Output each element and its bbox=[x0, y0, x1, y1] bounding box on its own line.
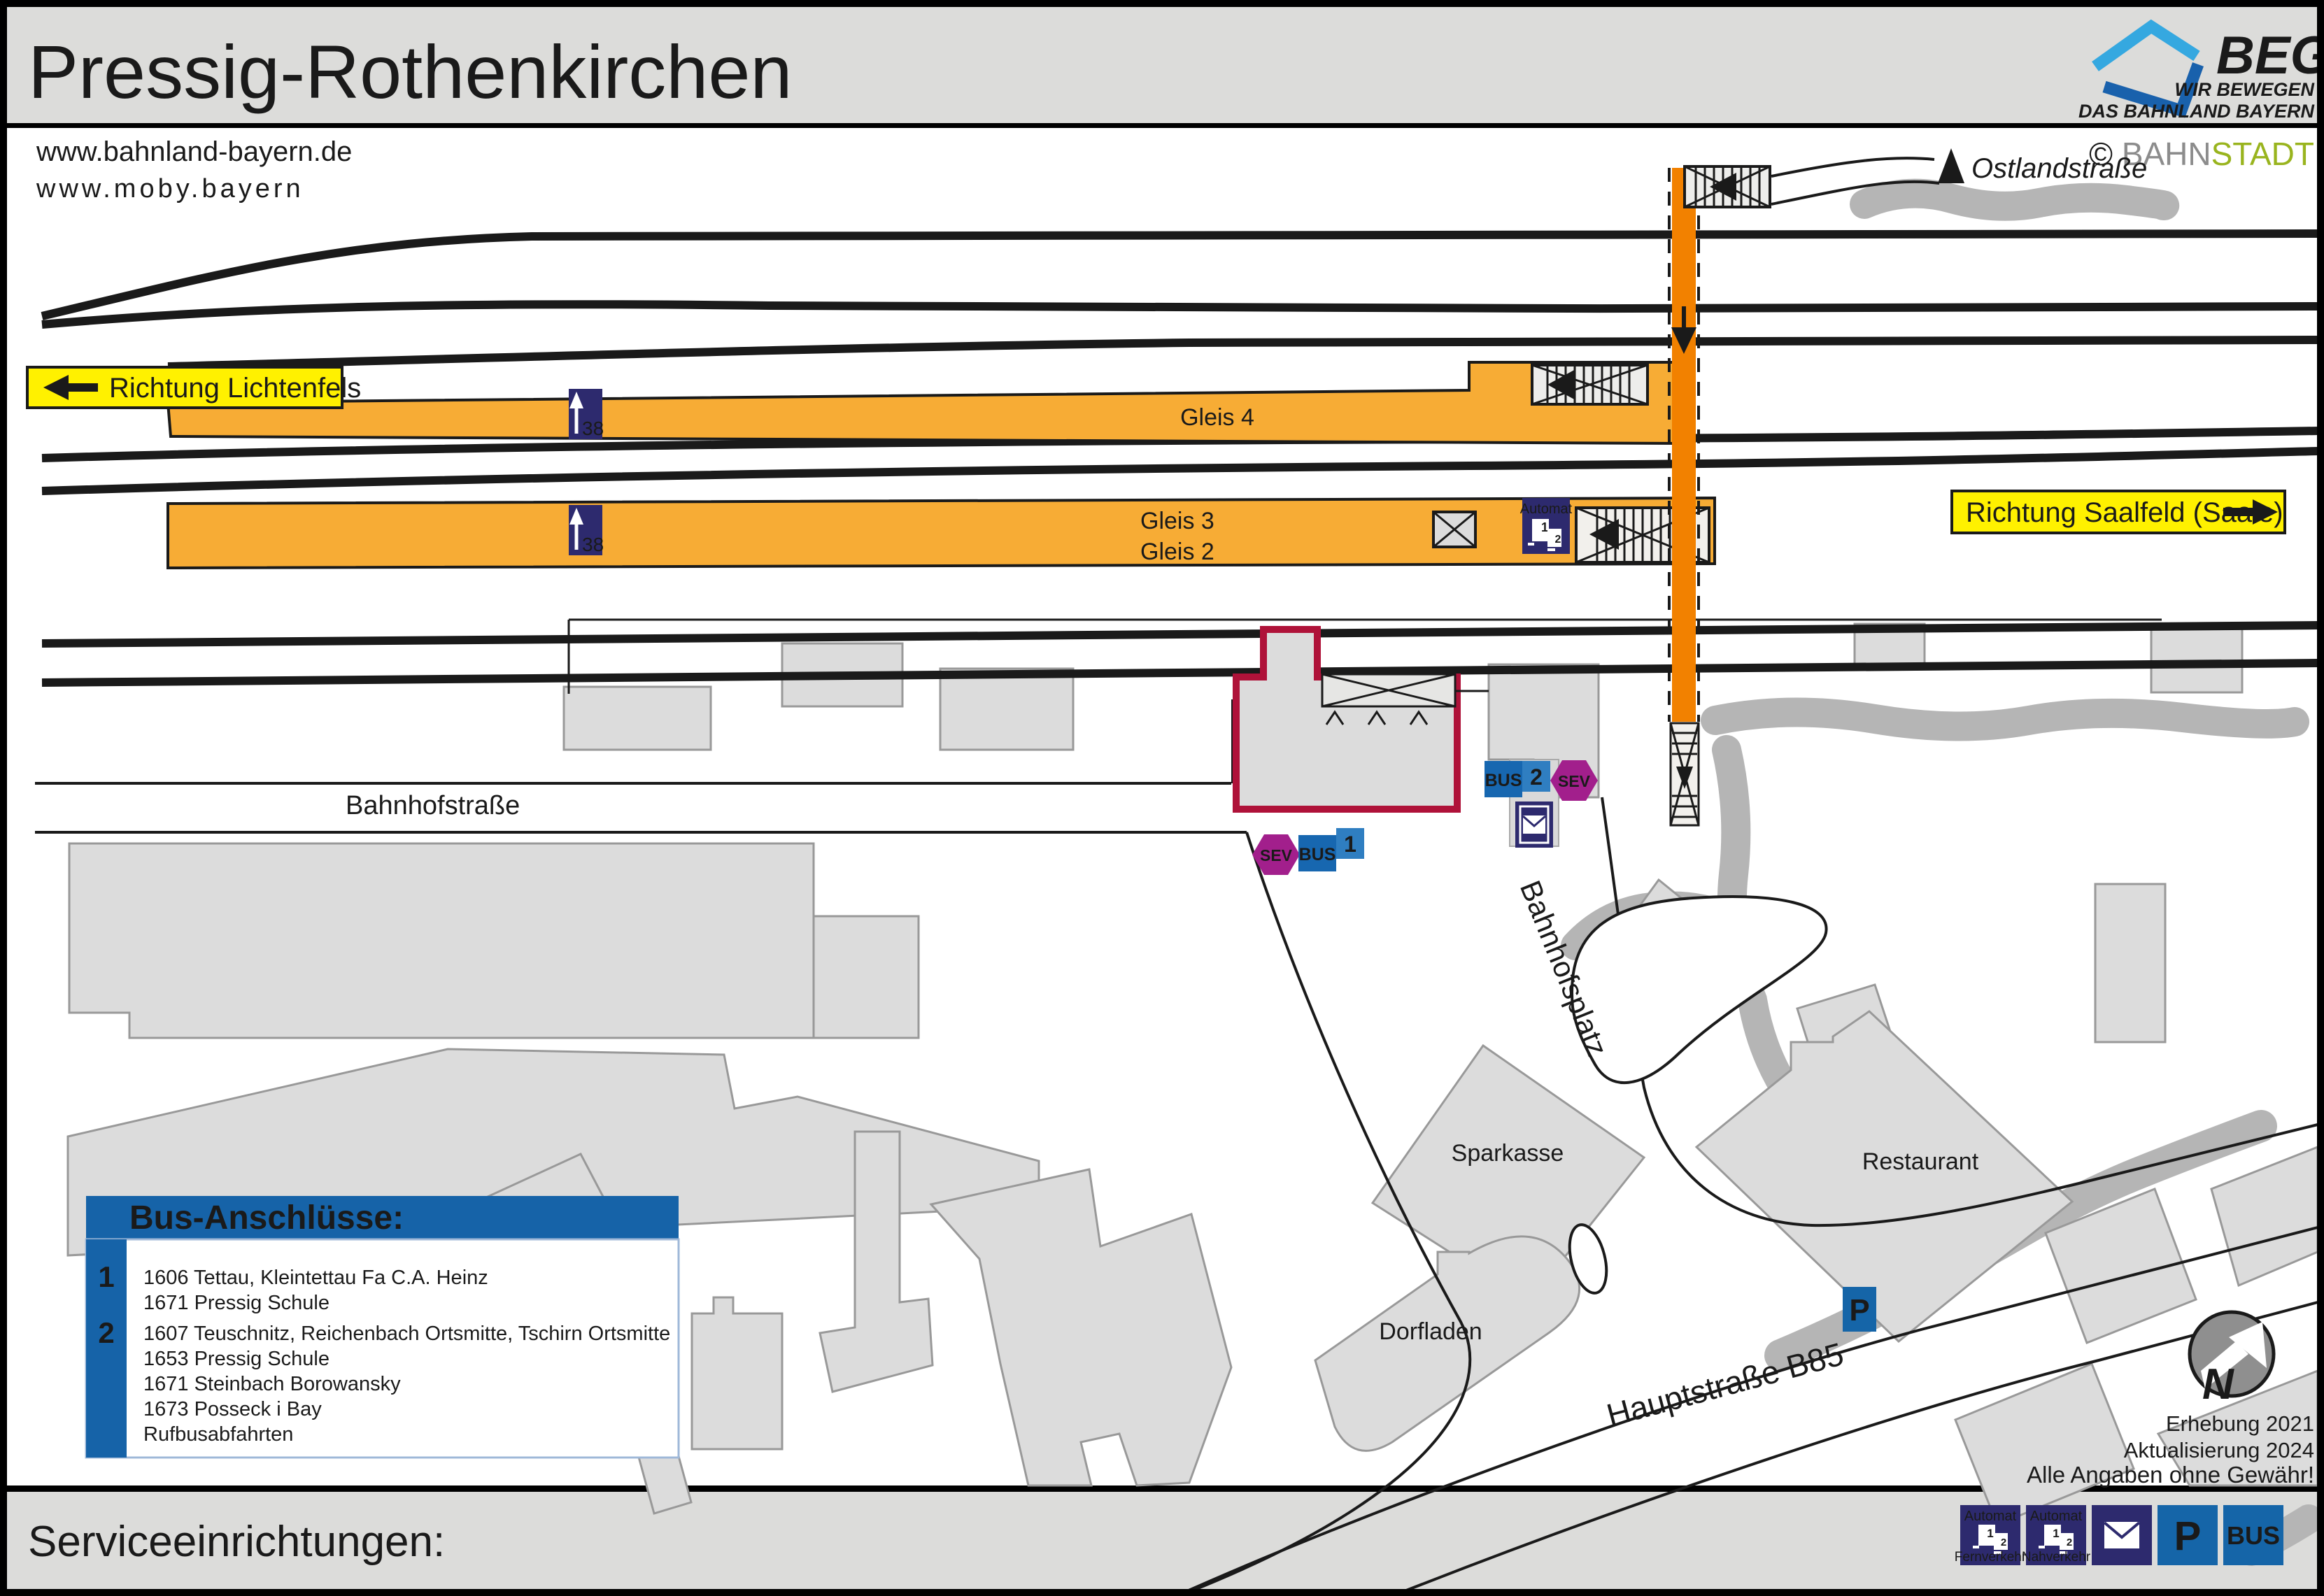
footer-divider bbox=[6, 1485, 2318, 1492]
sev-label: SEV bbox=[1260, 846, 1293, 864]
bus-legend-title: Bus-Anschlüsse: bbox=[129, 1199, 404, 1237]
height-value: 38 bbox=[582, 534, 604, 555]
page-title: Pressig-Rothenkirchen bbox=[28, 29, 793, 114]
label-gleis4: Gleis 4 bbox=[1180, 404, 1254, 431]
building-sw-2 bbox=[692, 1297, 782, 1449]
platform-height-badge-gleis23: 38 bbox=[569, 505, 604, 555]
nahverkehr-label: Nahverkehr bbox=[2022, 1550, 2091, 1565]
footer-title: Serviceeinrichtungen: bbox=[28, 1518, 445, 1566]
footer-icon-mailbox bbox=[2092, 1505, 2152, 1565]
parking-label: P bbox=[1849, 1293, 1869, 1327]
mailbox-map-icon bbox=[1515, 801, 1553, 848]
stairs-gleis4-icon bbox=[1532, 365, 1648, 404]
ticket-1: 1 bbox=[1541, 520, 1548, 534]
parking-label: P bbox=[2174, 1513, 2202, 1559]
bus-stop-number: 1 bbox=[1344, 832, 1356, 857]
building-small-1 bbox=[564, 687, 711, 750]
shelter-icon bbox=[1433, 512, 1475, 547]
building-small-3 bbox=[940, 669, 1073, 750]
platform-gleis2-3 bbox=[168, 498, 1715, 568]
legend-line: 1673 Posseck i Bay bbox=[143, 1398, 322, 1420]
note-disclaimer: Alle Angaben ohne Gewähr! bbox=[2027, 1462, 2314, 1488]
legend-line: 1653 Pressig Schule bbox=[143, 1348, 330, 1370]
automat-label: Automat bbox=[1964, 1509, 2017, 1524]
bus-stop-label: BUS bbox=[1299, 845, 1336, 864]
left-arrow-icon bbox=[67, 383, 98, 392]
bus-stop-number: 2 bbox=[1530, 764, 1543, 790]
ticket-machine-platform-icon: Automat 1 2 bbox=[1520, 498, 1573, 554]
sev-label: SEV bbox=[1558, 772, 1591, 790]
building-bahnhofstrasse-annex bbox=[814, 916, 919, 1038]
vegetation-ostlandstrasse bbox=[1864, 194, 2164, 206]
note-survey: Erhebung 2021 bbox=[2166, 1411, 2314, 1436]
label-bahnhofstrasse: Bahnhofstraße bbox=[346, 791, 520, 820]
label-ostlandstrasse: Ostlandstraße bbox=[1971, 153, 2147, 184]
legend-line: Rufbusabfahrten bbox=[143, 1423, 293, 1446]
label-sparkasse: Sparkasse bbox=[1452, 1140, 1564, 1167]
automat-label: Automat bbox=[2030, 1509, 2083, 1524]
note-update: Aktualisierung 2024 bbox=[2124, 1438, 2314, 1462]
ticket-1: 1 bbox=[1987, 1527, 1993, 1540]
parking-map-icon: P bbox=[1843, 1287, 1876, 1332]
ticket-2: 2 bbox=[1555, 534, 1561, 546]
link-moby-bayern: www.moby.bayern bbox=[36, 174, 304, 204]
north-label: N bbox=[2202, 1360, 2234, 1409]
sign-lichtenfels-label: Richtung Lichtenfels bbox=[109, 373, 361, 404]
header-divider bbox=[6, 123, 2318, 128]
platform-height-badge-gleis4: 38 bbox=[569, 389, 604, 439]
footer-icon-parking: P bbox=[2158, 1505, 2218, 1565]
building-far-right bbox=[2095, 884, 2165, 1042]
beg-tagline-1: WIR BEWEGEN bbox=[2175, 79, 2315, 100]
legend-line: 1606 Tettau, Kleintettau Fa C.A. Heinz bbox=[143, 1267, 488, 1289]
bus-legend-badge-1: 1 bbox=[98, 1260, 114, 1293]
label-gleis2: Gleis 2 bbox=[1140, 539, 1214, 565]
beg-tagline-2: DAS BAHNLAND BAYERN bbox=[2078, 101, 2315, 122]
height-value: 38 bbox=[582, 418, 604, 439]
bus-stop-label: BUS bbox=[1485, 771, 1522, 790]
stairs-ostlandstrasse-icon bbox=[1685, 166, 1770, 207]
sign-richtung-lichtenfels: Richtung Lichtenfels bbox=[27, 367, 361, 408]
building-bahnhofstrasse-block bbox=[69, 843, 814, 1038]
bus-label: BUS bbox=[2227, 1521, 2280, 1550]
bahnstadt-stadt: STADT bbox=[2211, 136, 2314, 172]
footer-icon-automat-nahverkehr: Automat 1 2 Nahverkehr bbox=[2022, 1505, 2091, 1565]
ticket-2: 2 bbox=[2067, 1537, 2072, 1548]
label-restaurant: Restaurant bbox=[1862, 1148, 1979, 1175]
sign-richtung-saalfeld: Richtung Saalfeld (Saale) bbox=[1952, 491, 2285, 533]
stairs-forecourt-icon bbox=[1671, 723, 1699, 825]
footer-icon-bus: BUS bbox=[2223, 1505, 2283, 1565]
legend-line: 1671 Pressig Schule bbox=[143, 1292, 330, 1314]
link-bahnland-bayern: www.bahnland-bayern.de bbox=[36, 136, 352, 167]
automat-label: Automat bbox=[1520, 501, 1573, 517]
legend-line: 1671 Steinbach Borowansky bbox=[143, 1373, 401, 1395]
vegetation-forecourt-band bbox=[1715, 712, 2295, 726]
footer-icon-automat-fernverkehr: Automat 1 2 Fernverkehr bbox=[1955, 1505, 2027, 1565]
legend-line: 1607 Teuschnitz, Reichenbach Ortsmitte, … bbox=[143, 1323, 670, 1345]
bus-legend: Bus-Anschlüsse: 1 2 1606 Tettau, Kleinte… bbox=[86, 1196, 679, 1458]
right-arrow-icon bbox=[2223, 508, 2254, 516]
fernverkehr-label: Fernverkehr bbox=[1955, 1550, 2027, 1565]
label-gleis3: Gleis 3 bbox=[1140, 508, 1214, 534]
label-dorfladen: Dorfladen bbox=[1379, 1318, 1482, 1345]
ticket-1: 1 bbox=[2053, 1527, 2059, 1540]
bus-legend-badge-2: 2 bbox=[98, 1316, 114, 1349]
accessible-route bbox=[1672, 168, 1696, 722]
ticket-2: 2 bbox=[2001, 1537, 2006, 1548]
beg-wordmark: BEG bbox=[2216, 26, 2324, 85]
station-map-page: Pressig-Rothenkirchen BEG WIR BEWEGEN DA… bbox=[0, 0, 2324, 1596]
